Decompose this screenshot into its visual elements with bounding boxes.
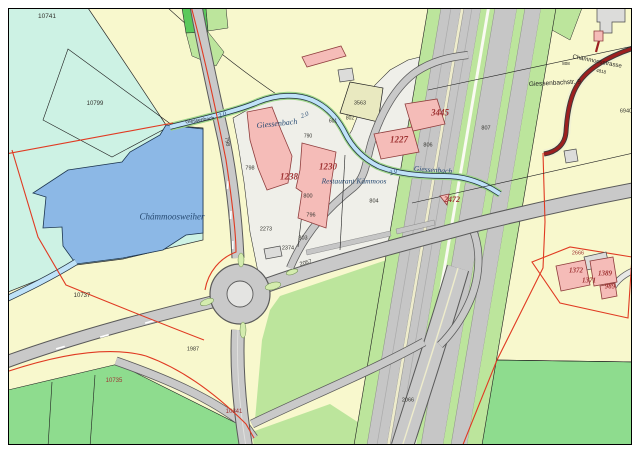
green-parcel-1 [206,8,228,31]
map-image [0,0,640,453]
map-canvas[interactable]: 1074110799Giessenbach2.0Giessenbach2.079… [0,0,640,453]
